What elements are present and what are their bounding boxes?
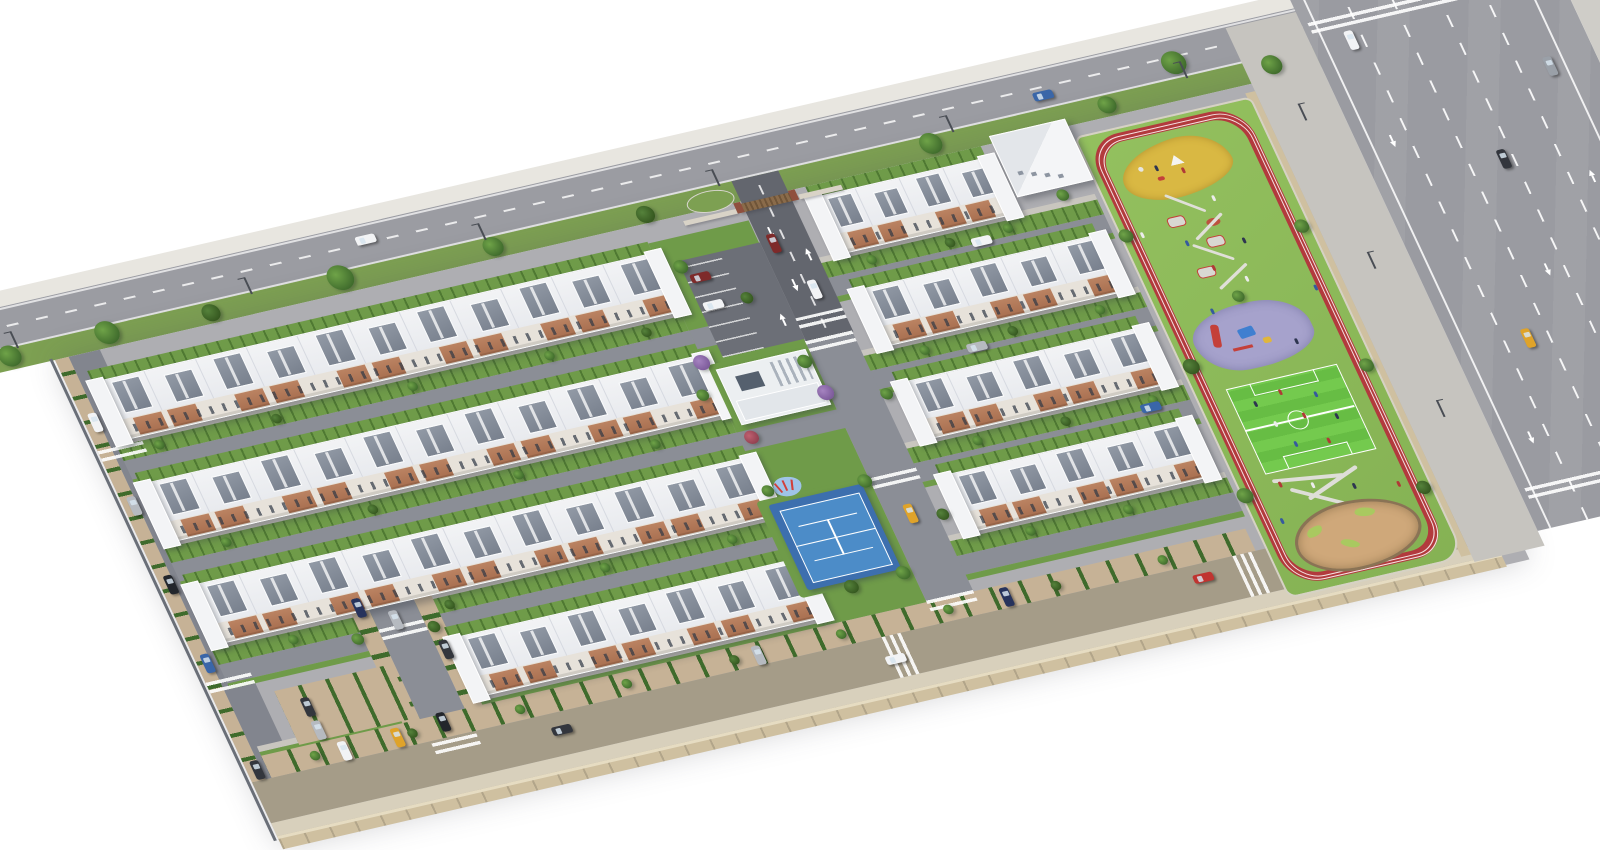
car-windshield	[1196, 575, 1203, 582]
car-windshield	[970, 344, 977, 351]
roof-skylight	[1074, 353, 1087, 376]
roof-skylight	[727, 467, 743, 495]
module-roof	[968, 262, 1009, 298]
car-windshield	[339, 745, 347, 751]
roof-skylight	[926, 382, 941, 409]
module-roof	[517, 400, 558, 434]
module-roof	[666, 478, 707, 512]
roof-skylight	[630, 381, 644, 406]
road-arrow-stem	[1591, 175, 1596, 182]
roof-skylight	[270, 577, 284, 602]
roof-skylight	[530, 287, 546, 315]
module-roof	[360, 549, 401, 583]
module-roof	[1062, 348, 1101, 380]
clubhouse-court	[735, 371, 765, 391]
roof-skylight	[728, 585, 742, 610]
roof-skylight	[925, 177, 940, 204]
car-windshield	[302, 701, 310, 707]
car-windshield	[974, 238, 981, 245]
module-roof	[965, 370, 1004, 402]
roof-skylight	[625, 491, 641, 519]
road-arrow-stem	[782, 319, 787, 326]
roof-skylight	[933, 283, 946, 306]
roof-skylight	[319, 561, 335, 589]
car-windshield	[441, 643, 449, 649]
module-roof	[463, 407, 506, 445]
swing-frame	[774, 483, 784, 493]
roof-skylight	[883, 192, 896, 215]
roof-skylight	[122, 381, 138, 409]
car-windshield	[129, 500, 137, 506]
module-roof	[518, 625, 559, 659]
road-arrow-stem	[791, 279, 796, 286]
roof-skylight	[980, 267, 995, 294]
roof-skylight	[372, 554, 386, 579]
roof-skylight	[475, 412, 491, 440]
roof-skylight	[1121, 337, 1136, 364]
module-roof	[367, 321, 408, 355]
roof-skylight	[577, 614, 593, 642]
module-roof	[415, 423, 456, 457]
roof-skylight	[837, 197, 852, 224]
roof-skylight	[427, 428, 441, 453]
roof-skylight	[428, 310, 444, 338]
roof-skylight	[977, 375, 990, 398]
roof-skylight	[632, 263, 648, 291]
roof-skylight	[474, 530, 488, 555]
module-roof	[260, 454, 303, 492]
car-windshield	[1036, 93, 1043, 100]
road-arrow-stem	[1527, 431, 1532, 438]
car-windshield	[1545, 60, 1553, 66]
roof-skylight	[325, 452, 339, 477]
module-roof	[258, 572, 299, 606]
car-windshield	[390, 614, 398, 620]
car-windshield	[359, 237, 366, 244]
module-roof	[265, 345, 306, 379]
car-windshield	[392, 731, 400, 737]
module-roof	[922, 278, 961, 310]
module-roof	[212, 352, 255, 390]
roof-skylight	[971, 172, 984, 195]
roof-skylight	[223, 476, 237, 501]
car-windshield	[313, 724, 321, 730]
module-roof	[1106, 441, 1145, 473]
car-windshield	[753, 649, 761, 655]
roof-skylight	[1031, 260, 1044, 283]
swing-frame	[781, 480, 788, 491]
roof-skylight	[175, 374, 189, 399]
car-windshield	[1499, 153, 1507, 159]
module-roof	[511, 509, 554, 547]
module-roof	[163, 368, 204, 402]
module-roof	[618, 376, 659, 410]
module-roof	[462, 525, 503, 559]
roof-skylight	[421, 538, 437, 566]
module-roof	[1008, 463, 1047, 495]
roof-skylight	[583, 280, 597, 305]
car-windshield	[252, 764, 260, 770]
roof-skylight	[1023, 360, 1038, 387]
module-roof	[617, 603, 658, 637]
aerial-site-render: Aerial 3D rendering of a residential apa…	[0, 0, 1600, 850]
roof-skylight	[679, 365, 695, 393]
module-roof	[872, 187, 909, 219]
car-windshield	[555, 727, 562, 734]
roof-skylight	[379, 327, 393, 352]
car-windshield	[1001, 591, 1009, 597]
road-arrow-stem	[808, 254, 813, 261]
roof-skylight	[1117, 446, 1130, 469]
roof-skylight	[576, 507, 590, 532]
roof-skylight	[224, 357, 240, 385]
roof-skylight	[1077, 244, 1092, 271]
car-windshield	[202, 657, 210, 663]
car-windshield	[905, 507, 913, 513]
car-windshield	[90, 416, 98, 422]
roof-skylight	[217, 585, 233, 613]
swing-frame	[790, 480, 794, 491]
roof-skylight	[969, 475, 984, 502]
car-windshield	[166, 578, 174, 584]
roof-skylight	[523, 514, 539, 542]
module-roof	[1019, 255, 1058, 287]
roof-skylight	[676, 592, 692, 620]
roof-skylight	[478, 637, 494, 665]
car-windshield	[438, 716, 446, 722]
car-windshield	[1144, 405, 1151, 412]
roof-skylight	[629, 608, 643, 633]
module-roof	[1055, 447, 1096, 483]
car-windshield	[889, 656, 896, 663]
module-roof	[664, 586, 706, 624]
module-roof	[564, 502, 605, 536]
car-windshield	[1523, 332, 1531, 338]
car-windshield	[1346, 34, 1354, 40]
roof-skylight	[678, 483, 692, 508]
module-roof	[416, 305, 459, 343]
roof-skylight	[530, 630, 544, 655]
roof-skylight	[529, 405, 543, 430]
module-roof	[571, 274, 612, 308]
roof-skylight	[326, 334, 342, 362]
module-roof	[211, 470, 252, 504]
road-arrow-stem	[1544, 263, 1549, 270]
car-windshield	[693, 275, 700, 282]
roof-skylight	[481, 303, 495, 328]
roof-skylight	[883, 289, 898, 316]
render-caption: Aerial 3D rendering of a residential apa…	[0, 0, 1, 1]
car-windshield	[706, 302, 713, 309]
road-arrow-stem	[1389, 135, 1394, 142]
roof-skylight	[277, 350, 291, 375]
roof-skylight	[170, 483, 186, 511]
roof-skylight	[1066, 452, 1081, 479]
module-roof	[716, 580, 757, 614]
roof-skylight	[1020, 468, 1033, 491]
roof-skylight	[1164, 430, 1179, 457]
module-roof	[1012, 355, 1053, 391]
roof-skylight	[577, 389, 593, 417]
car-windshield	[809, 283, 817, 289]
module-roof	[307, 556, 350, 594]
car-windshield	[768, 237, 776, 243]
roof-skylight	[272, 459, 288, 487]
module-roof	[313, 447, 354, 481]
roof-skylight	[374, 436, 390, 464]
module-roof	[469, 298, 510, 332]
car-windshield	[353, 602, 361, 608]
